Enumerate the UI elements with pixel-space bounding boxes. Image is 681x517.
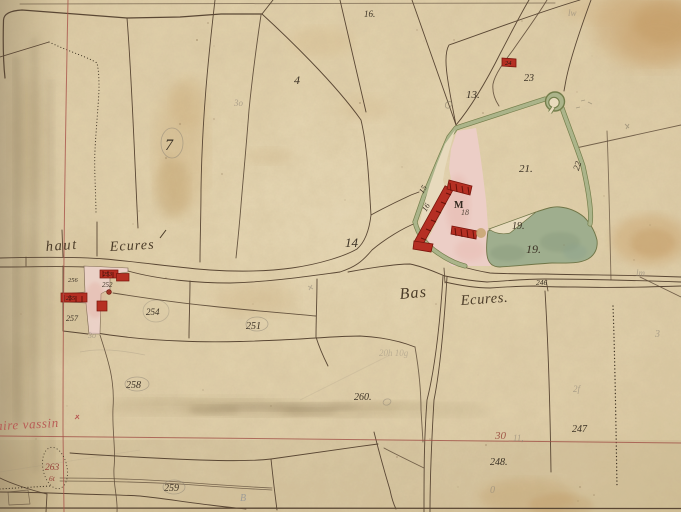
svg-text:258: 258 [126,380,141,391]
svg-text:252: 252 [102,281,113,289]
svg-text:11,: 11, [513,433,524,443]
svg-text:248.: 248. [490,457,508,468]
svg-text:24: 24 [505,60,512,67]
svg-text:19.: 19. [512,221,525,232]
svg-text:30: 30 [494,430,507,442]
svg-text:255: 255 [66,296,75,302]
svg-text:257: 257 [66,314,79,323]
svg-text:6t: 6t [49,474,56,483]
svg-text:20h 10g: 20h 10g [379,348,409,358]
svg-text:3o: 3o [87,331,96,340]
svg-text:23: 23 [524,73,534,84]
svg-text:18: 18 [461,208,469,217]
svg-text:haut: haut [45,237,78,255]
svg-text:256: 256 [68,277,79,284]
svg-text:246: 246 [536,278,548,287]
svg-text:14: 14 [345,235,359,250]
svg-text:13.: 13. [466,89,480,101]
svg-text:Ecures: Ecures [108,238,155,255]
svg-text:247: 247 [572,424,588,435]
svg-text:Ecures.: Ecures. [459,290,509,309]
svg-text:3o: 3o [233,98,244,108]
svg-text:lw: lw [568,8,577,18]
svg-text:19.: 19. [526,242,541,256]
svg-text:21.: 21. [519,163,533,175]
svg-text:B: B [240,493,246,504]
svg-text:7: 7 [165,137,174,154]
svg-text:Bas: Bas [399,284,428,303]
svg-text:lm: lm [636,268,646,278]
svg-text:0: 0 [490,485,495,496]
svg-text:260.: 260. [354,392,372,403]
svg-text:253: 253 [103,272,112,278]
svg-text:254: 254 [146,307,160,317]
svg-text:3: 3 [654,329,660,340]
svg-text:4: 4 [294,73,300,87]
